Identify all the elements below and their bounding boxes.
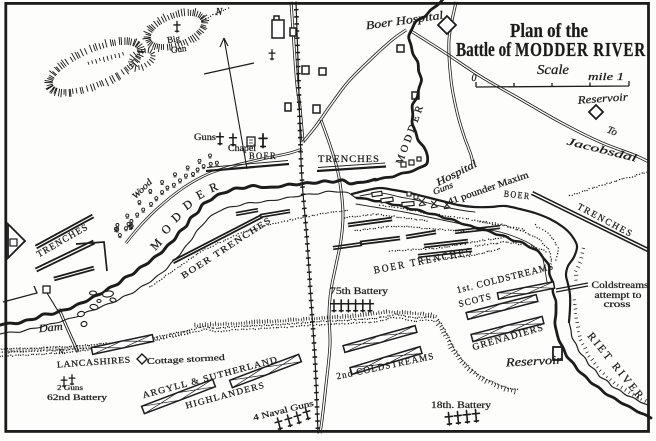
svg-text:0: 0 [472, 73, 477, 84]
svg-text:Coldstreams: Coldstreams [592, 280, 650, 290]
svg-text:Scale: Scale [537, 62, 569, 77]
svg-text:TRENCHES: TRENCHES [318, 155, 380, 165]
svg-text:N: N [215, 7, 224, 18]
svg-text:Battle of MODDER RIVER: Battle of MODDER RIVER [456, 39, 646, 61]
svg-text:Guns: Guns [194, 132, 217, 142]
svg-text:BOER: BOER [249, 152, 277, 162]
svg-text:62nd Battery: 62nd Battery [47, 392, 108, 402]
svg-text:75th Battery: 75th Battery [330, 287, 388, 297]
svg-text:mile 1: mile 1 [588, 71, 624, 83]
svg-text:cross: cross [604, 299, 632, 309]
svg-text:N.: N. [58, 347, 65, 356]
svg-text:Chapel: Chapel [228, 143, 257, 153]
svg-text:18th. Battery: 18th. Battery [431, 401, 491, 411]
svg-text:2 Guns: 2 Guns [57, 383, 83, 392]
